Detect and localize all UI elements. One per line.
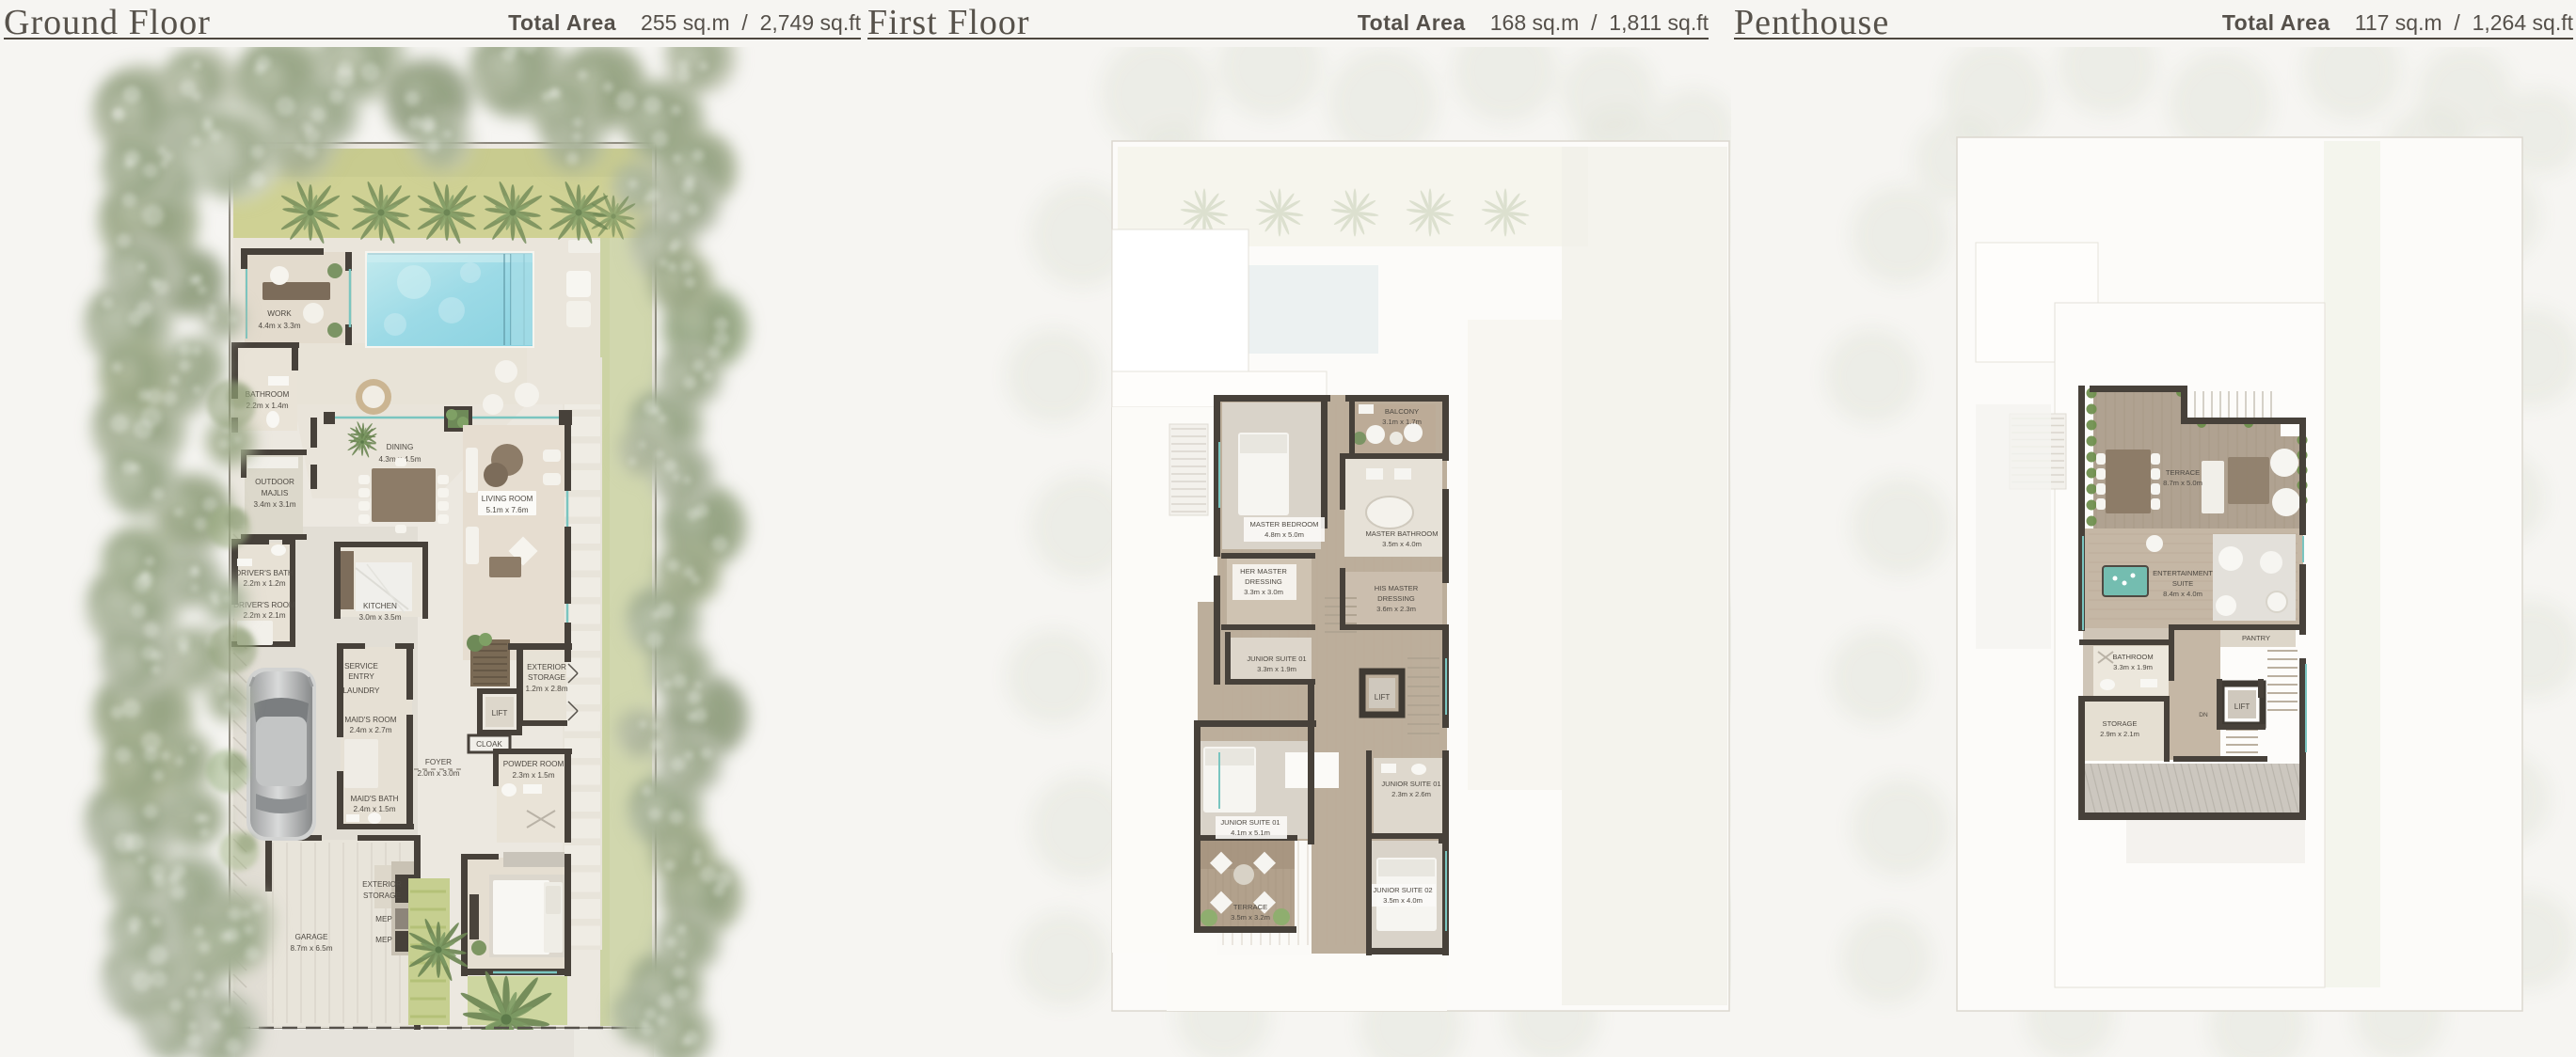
- svg-text:5.1m x 7.6m: 5.1m x 7.6m: [485, 506, 528, 514]
- svg-text:JUNIOR SUITE 02: JUNIOR SUITE 02: [1373, 886, 1432, 894]
- svg-text:KITCHEN: KITCHEN: [363, 602, 397, 610]
- svg-text:ENTERTAINMENT: ENTERTAINMENT: [2153, 569, 2213, 577]
- svg-text:JUNIOR SUITE 01: JUNIOR SUITE 01: [1220, 818, 1280, 827]
- svg-text:DRIVER'S BATH: DRIVER'S BATH: [235, 569, 294, 577]
- svg-text:TERRACE: TERRACE: [2166, 468, 2200, 477]
- svg-text:MEP: MEP: [375, 936, 392, 944]
- svg-text:STORAGE: STORAGE: [528, 673, 565, 682]
- svg-text:MASTER BATHROOM: MASTER BATHROOM: [1365, 529, 1438, 538]
- svg-text:OUTDOOR: OUTDOOR: [255, 478, 294, 486]
- svg-text:HER MASTER: HER MASTER: [1240, 567, 1287, 576]
- svg-text:4.1m x 5.1m: 4.1m x 5.1m: [1231, 828, 1270, 837]
- svg-text:LIFT: LIFT: [1375, 693, 1391, 702]
- svg-text:GARAGE: GARAGE: [294, 933, 328, 941]
- svg-text:3.5m x 3.2m: 3.5m x 3.2m: [1231, 913, 1270, 922]
- svg-text:JUNIOR SUITE 01: JUNIOR SUITE 01: [1247, 655, 1306, 663]
- svg-text:BALCONY: BALCONY: [1385, 407, 1419, 416]
- svg-text:3.5m x 4.0m: 3.5m x 4.0m: [1383, 896, 1423, 905]
- svg-text:DRESSING: DRESSING: [1245, 577, 1282, 586]
- svg-text:2.2m x 1.2m: 2.2m x 1.2m: [243, 579, 285, 588]
- svg-text:WORK: WORK: [267, 309, 292, 318]
- svg-text:2.4m x 2.7m: 2.4m x 2.7m: [349, 726, 391, 734]
- svg-text:LIVING ROOM: LIVING ROOM: [482, 495, 533, 503]
- svg-text:8.7m x 5.0m: 8.7m x 5.0m: [2163, 479, 2202, 487]
- svg-text:MAID'S BATH: MAID'S BATH: [351, 795, 399, 803]
- svg-text:DRESSING: DRESSING: [1377, 594, 1415, 603]
- svg-text:SERVICE: SERVICE: [344, 662, 378, 670]
- svg-text:POWDER ROOM: POWDER ROOM: [503, 760, 564, 768]
- svg-text:3.5m x 4.0m: 3.5m x 4.0m: [1382, 540, 1422, 548]
- svg-text:MAJLIS: MAJLIS: [262, 489, 289, 497]
- svg-text:TERRACE: TERRACE: [1233, 903, 1267, 911]
- svg-text:LAUNDRY: LAUNDRY: [343, 686, 381, 695]
- svg-text:LIFT: LIFT: [492, 709, 508, 718]
- svg-text:ENTRY: ENTRY: [348, 672, 374, 681]
- svg-text:3.4m x 3.1m: 3.4m x 3.1m: [253, 500, 295, 509]
- svg-text:3.0m x 3.5m: 3.0m x 3.5m: [358, 613, 401, 622]
- svg-text:3.6m x 2.3m: 3.6m x 2.3m: [1376, 605, 1416, 613]
- svg-text:BATHROOM: BATHROOM: [2112, 653, 2153, 661]
- svg-text:EXTERIOR: EXTERIOR: [527, 663, 566, 671]
- svg-text:3.1m x 1.7m: 3.1m x 1.7m: [1382, 418, 1422, 426]
- svg-text:SUITE: SUITE: [2172, 579, 2193, 588]
- svg-text:JUNIOR SUITE 01: JUNIOR SUITE 01: [1381, 780, 1440, 788]
- svg-text:MASTER BEDROOM: MASTER BEDROOM: [1250, 520, 1319, 528]
- svg-text:3.3m x 1.9m: 3.3m x 1.9m: [2113, 663, 2153, 671]
- svg-text:FOYER: FOYER: [425, 758, 452, 766]
- svg-text:PANTRY: PANTRY: [2242, 634, 2270, 642]
- svg-text:DINING: DINING: [387, 443, 414, 451]
- svg-text:8.4m x 4.0m: 8.4m x 4.0m: [2163, 590, 2202, 598]
- svg-text:EXTERIOR: EXTERIOR: [362, 880, 402, 889]
- svg-text:3.3m x 3.0m: 3.3m x 3.0m: [1244, 588, 1283, 596]
- svg-text:2.3m x 1.5m: 2.3m x 1.5m: [512, 771, 554, 780]
- svg-text:2.2m x 2.1m: 2.2m x 2.1m: [243, 611, 285, 620]
- svg-text:2.3m x 2.6m: 2.3m x 2.6m: [1391, 790, 1431, 798]
- svg-text:3.3m x 1.9m: 3.3m x 1.9m: [1257, 665, 1296, 673]
- svg-text:MAID'S ROOM: MAID'S ROOM: [344, 716, 396, 724]
- svg-text:MEP: MEP: [375, 915, 392, 923]
- svg-text:HIS MASTER: HIS MASTER: [1375, 584, 1419, 592]
- svg-text:LIFT: LIFT: [2234, 702, 2250, 711]
- svg-text:STORAGE: STORAGE: [2103, 719, 2138, 728]
- svg-text:STORAGE: STORAGE: [363, 891, 401, 900]
- svg-text:1.2m x 2.8m: 1.2m x 2.8m: [525, 685, 567, 693]
- svg-text:4.4m x 3.3m: 4.4m x 3.3m: [258, 322, 300, 330]
- svg-text:4.8m x 5.0m: 4.8m x 5.0m: [1264, 530, 1304, 539]
- svg-text:2.9m x 2.1m: 2.9m x 2.1m: [2100, 730, 2139, 738]
- svg-text:DN: DN: [2199, 712, 2208, 718]
- svg-text:2.0m x 3.0m: 2.0m x 3.0m: [417, 769, 459, 778]
- svg-text:2.4m x 1.5m: 2.4m x 1.5m: [353, 805, 395, 813]
- svg-text:8.7m x 6.5m: 8.7m x 6.5m: [290, 944, 332, 953]
- svg-text:CLOAK: CLOAK: [476, 740, 502, 749]
